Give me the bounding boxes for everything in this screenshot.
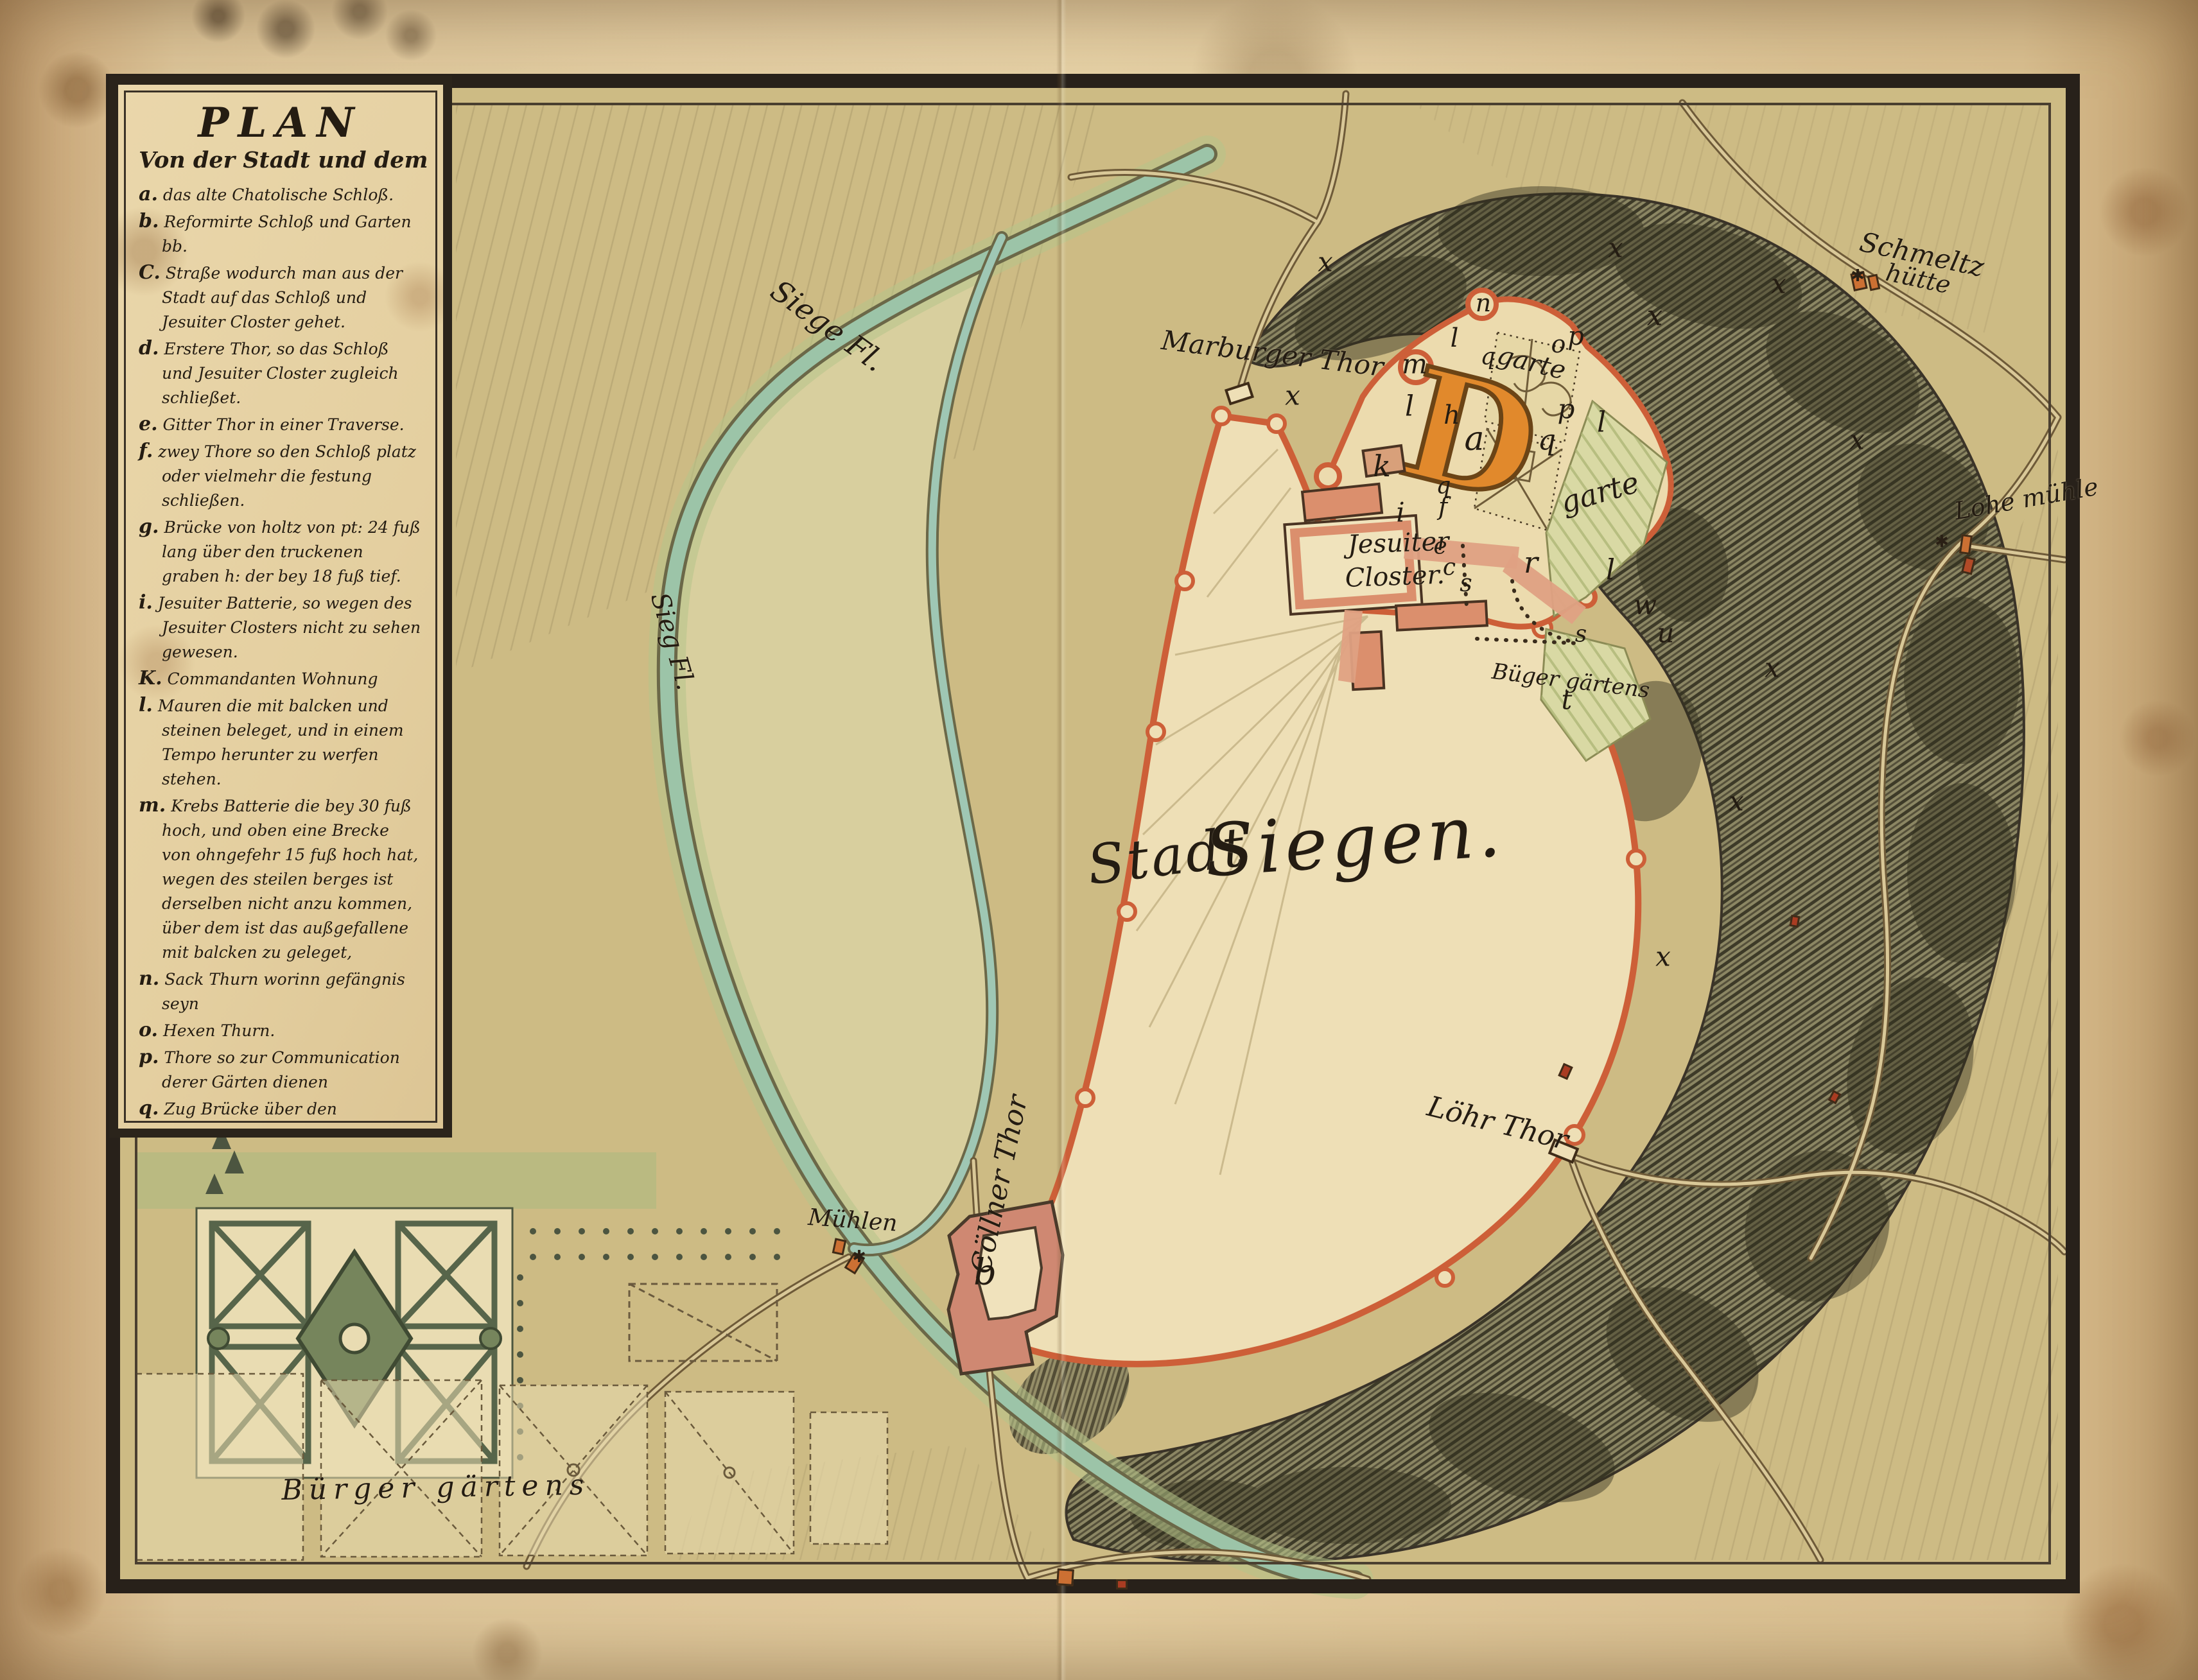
map-letter: l xyxy=(1451,324,1459,353)
legend-item-text: Hexen Thurn. xyxy=(163,1021,275,1040)
map-letter: s xyxy=(1575,621,1587,648)
legend-item-text: das alte Chatolische Schloß. xyxy=(163,186,394,204)
legend-item-key: i. xyxy=(139,591,158,614)
legend-item: l.Mauren die mit balcken und steinen bel… xyxy=(139,693,423,792)
legend-item: o.Hexen Thurn. xyxy=(139,1018,423,1043)
map-letter: k xyxy=(1373,449,1391,483)
legend-item: n.Sack Thurn worinn gefängnis seyn xyxy=(139,967,423,1016)
map-label: Bürger gärtens xyxy=(281,1469,591,1507)
legend-list: a.das alte Chatolische Schloß.b.Reformir… xyxy=(139,182,423,1123)
map-letter: n xyxy=(1476,289,1491,317)
map-letter: x xyxy=(1729,786,1744,817)
legend-item: e.Gitter Thor in einer Traverse. xyxy=(139,412,423,437)
map-letter: u xyxy=(1657,618,1674,649)
legend-item-key: o. xyxy=(139,1019,163,1041)
legend-item: d.Erstere Thor, so das Schloß und Jesuit… xyxy=(139,336,423,410)
legend-item-key: d. xyxy=(139,337,164,359)
legend-item: C.Straße wodurch man aus der Stadt auf d… xyxy=(139,261,423,334)
map-letter: x xyxy=(1655,941,1671,973)
map-letter: l xyxy=(1405,390,1414,423)
legend-item: f.zwey Thore so den Schloß platz oder vi… xyxy=(139,439,423,513)
legend-item: a.das alte Chatolische Schloß. xyxy=(139,182,423,207)
map-letter: p xyxy=(1558,394,1575,425)
map-letter: t xyxy=(1562,684,1573,716)
legend-inner-border: PLAN Von der Stadt und dem Schloß Siegen… xyxy=(124,91,437,1123)
legend-item: g.Brücke von holtz von pt: 24 fuß lang ü… xyxy=(139,515,423,589)
map-letter: x xyxy=(1771,268,1786,300)
building-marker xyxy=(1116,1579,1128,1589)
map-letter: x xyxy=(1285,380,1300,411)
legend-item: m.Krebs Batterie die bey 30 fuß hoch, un… xyxy=(139,793,423,965)
map-letter: l xyxy=(1606,554,1615,587)
map-letter: b xyxy=(973,1252,997,1294)
map-letter: x xyxy=(1318,247,1333,278)
legend-item-text: Mauren die mit balcken und steinen beleg… xyxy=(158,697,404,788)
legend-item-text: Erstere Thor, so das Schloß und Jesuiter… xyxy=(162,340,399,407)
map-letter: a xyxy=(1464,420,1484,458)
legend-item-text: Zug Brücke über den truckenen graben xyxy=(162,1100,337,1123)
legend-item-key: n. xyxy=(139,967,164,990)
legend-title: PLAN xyxy=(139,101,423,144)
map-letter: s xyxy=(1460,569,1472,597)
mill-star-mark: ✱ xyxy=(852,1247,866,1267)
legend-item-text: Brücke von holtz von pt: 24 fuß lang übe… xyxy=(162,518,421,585)
legend-subtitle: Von der Stadt und dem Schloß Siegen. xyxy=(139,147,423,173)
legend-item-key: a. xyxy=(139,183,163,205)
legend-item-text: zwey Thore so den Schloß platz oder viel… xyxy=(158,442,416,510)
legend-item-text: Commandanten Wohnung xyxy=(168,670,378,688)
map-letter: x xyxy=(1647,300,1663,333)
legend-item-key: b. xyxy=(139,210,164,232)
legend-item-key: e. xyxy=(139,413,163,435)
legend-item-text: Thore so zur Communication derer Gärten … xyxy=(162,1048,400,1091)
legend-item-key: C. xyxy=(139,261,166,284)
building-marker xyxy=(1056,1568,1074,1586)
map-letter: x xyxy=(1765,652,1780,684)
legend-item-key: g. xyxy=(139,515,164,538)
map-canvas: D xyxy=(0,0,2198,1680)
legend-item-text: Straße wodurch man aus der Stadt auf das… xyxy=(162,264,403,331)
map-letter: q xyxy=(1538,424,1556,457)
map-letter: p xyxy=(1567,322,1584,351)
legend-item-key: m. xyxy=(139,794,171,817)
legend-item: p.Thore so zur Communication derer Gärte… xyxy=(139,1045,423,1095)
legend-item-key: p. xyxy=(139,1046,164,1068)
legend-item-text: Jesuiter Batterie, so wegen des Jesuiter… xyxy=(158,594,421,661)
legend-item-text: Krebs Batterie die bey 30 fuß hoch, und … xyxy=(162,797,418,962)
map-letter: m xyxy=(1402,349,1427,380)
map-label: Closter. xyxy=(1345,560,1445,593)
map-letter: l xyxy=(1597,406,1606,439)
legend-item-text: Gitter Thor in einer Traverse. xyxy=(163,415,405,434)
map-letter: c xyxy=(1443,555,1456,581)
legend-item: b.Reformirte Schloß und Garten bb. xyxy=(139,209,423,259)
legend-item-key: K. xyxy=(139,667,168,689)
map-letter: r xyxy=(1524,545,1538,580)
map-letter: w xyxy=(1634,589,1657,621)
legend-item-key: q. xyxy=(139,1097,164,1120)
map-letter: i xyxy=(1396,497,1404,528)
map-letter: h xyxy=(1444,401,1460,430)
legend-panel: PLAN Von der Stadt und dem Schloß Siegen… xyxy=(109,76,452,1138)
legend-item: i.Jesuiter Batterie, so wegen des Jesuit… xyxy=(139,591,423,664)
map-letter: x xyxy=(1849,424,1865,456)
map-letter: o xyxy=(1551,330,1566,358)
legend-item-text: Sack Thurn worinn gefängnis seyn xyxy=(162,970,405,1013)
mill-star-mark: ✱ xyxy=(1935,532,1949,551)
legend-item: K.Commandanten Wohnung xyxy=(139,666,423,691)
legend-item: q.Zug Brücke über den truckenen graben xyxy=(139,1096,423,1123)
legend-item-key: f. xyxy=(139,440,158,462)
map-letter: f xyxy=(1438,492,1447,521)
legend-item-key: l. xyxy=(139,694,158,716)
legend-item-text: Reformirte Schloß und Garten bb. xyxy=(162,212,412,255)
map-letter: q xyxy=(1480,344,1495,370)
mill-star-mark: ✱ xyxy=(1851,266,1865,286)
map-letter: x xyxy=(1608,232,1623,264)
